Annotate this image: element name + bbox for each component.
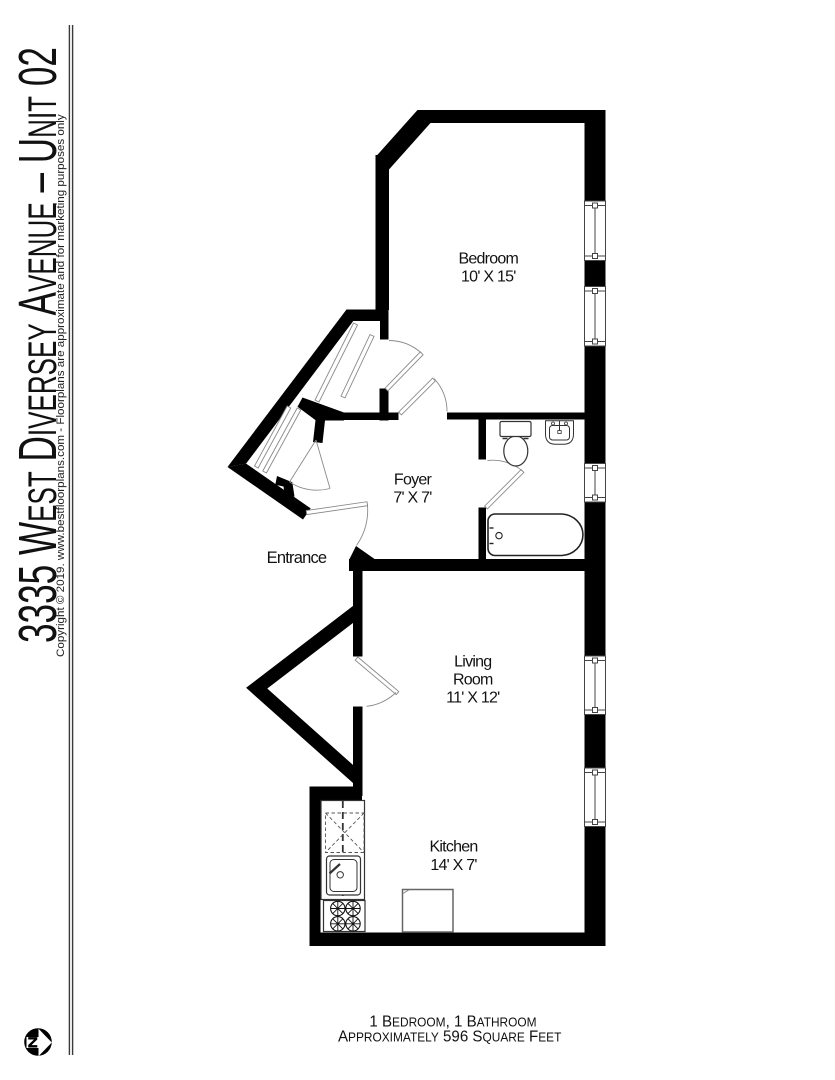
- svg-text:11' X 12': 11' X 12': [446, 690, 500, 707]
- svg-text:Living: Living: [454, 654, 491, 671]
- svg-text:Entrance: Entrance: [267, 549, 327, 567]
- svg-text:7' X 7': 7' X 7': [393, 490, 432, 507]
- svg-text:Bedroom: Bedroom: [458, 251, 518, 268]
- svg-text:Kitchen: Kitchen: [429, 839, 477, 856]
- svg-text:Copyright © 2019. www.bestfloo: Copyright © 2019. www.bestfloorplans.com…: [55, 114, 67, 657]
- svg-text:APPROXIMATELY 596 SQUARE FEET: APPROXIMATELY 596 SQUARE FEET: [338, 1028, 562, 1045]
- svg-text:Room: Room: [453, 672, 493, 689]
- svg-text:10' X 15': 10' X 15': [461, 268, 516, 285]
- svg-text:14' X 7': 14' X 7': [430, 857, 477, 874]
- svg-text:Foyer: Foyer: [394, 472, 433, 489]
